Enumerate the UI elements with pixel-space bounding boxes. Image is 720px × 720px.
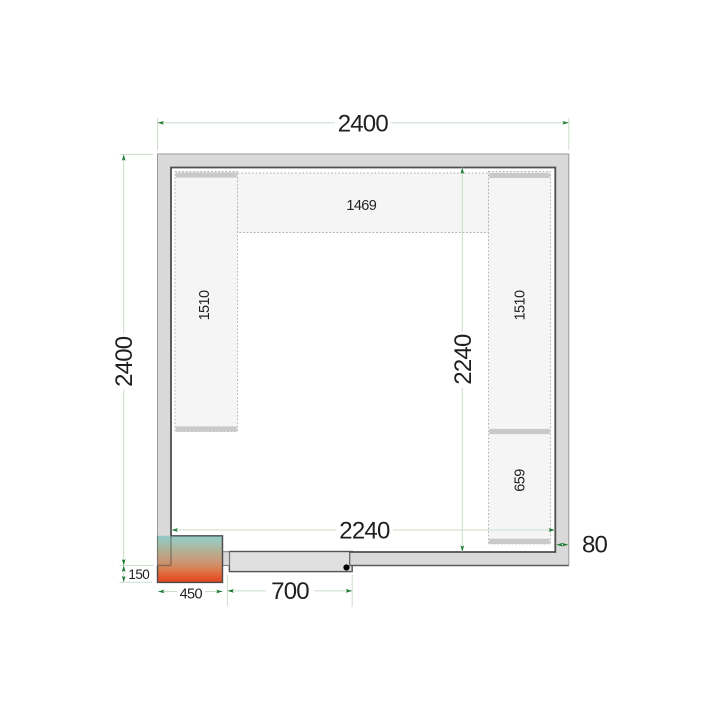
svg-text:450: 450 — [180, 586, 203, 602]
svg-text:2240: 2240 — [450, 334, 477, 385]
svg-text:80: 80 — [582, 531, 608, 558]
svg-text:659: 659 — [512, 469, 528, 492]
svg-text:2400: 2400 — [338, 110, 389, 137]
svg-text:700: 700 — [271, 578, 309, 605]
svg-text:2400: 2400 — [111, 336, 138, 387]
svg-text:1469: 1469 — [346, 198, 376, 214]
svg-text:1510: 1510 — [197, 290, 213, 320]
svg-text:1510: 1510 — [512, 290, 528, 320]
svg-text:2240: 2240 — [339, 518, 390, 545]
svg-text:150: 150 — [128, 567, 149, 582]
